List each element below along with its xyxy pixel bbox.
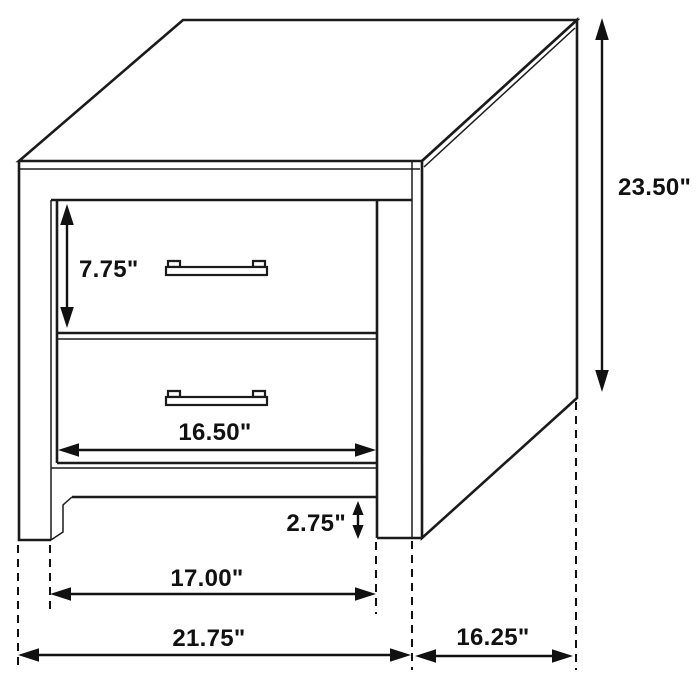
- dimension-label: 2.75": [286, 510, 346, 537]
- nightstand-dimension-diagram: 7.75" 23.50" 16.50" 2.75" 17: [0, 0, 700, 700]
- dimension-label: 16.50": [178, 419, 251, 446]
- dimension-diagram-page: 7.75" 23.50" 16.50" 2.75" 17: [0, 0, 700, 700]
- dimension-label: 23.50": [618, 174, 691, 201]
- dimension-label: 7.75": [79, 256, 139, 283]
- handle-bar-icon: [166, 397, 267, 405]
- dimension-label: 17.00": [170, 565, 243, 592]
- dimension-label: 16.25": [456, 624, 529, 651]
- handle-bar-icon: [166, 267, 267, 275]
- dimension-label: 21.75": [172, 625, 245, 652]
